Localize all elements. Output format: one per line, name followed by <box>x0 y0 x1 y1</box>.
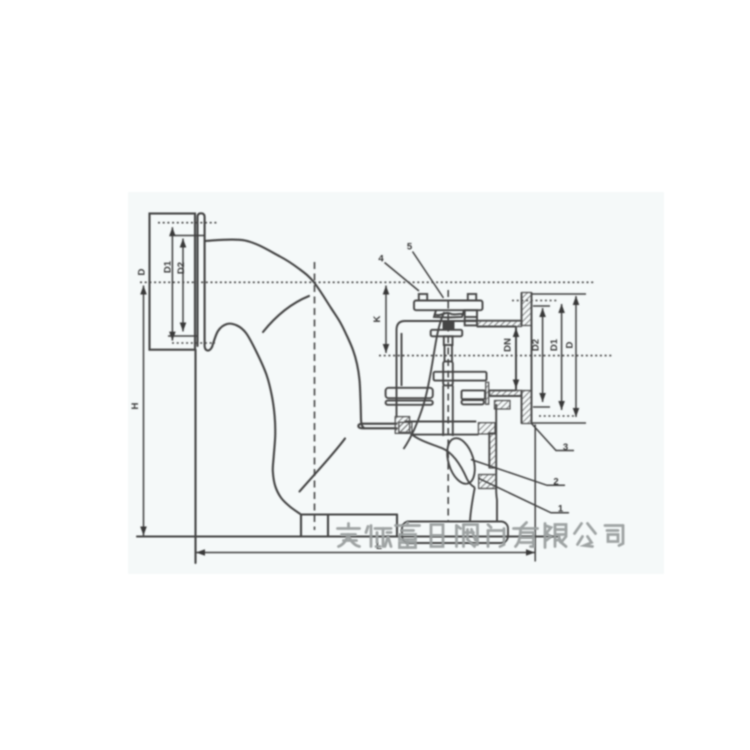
svg-text:H: H <box>130 402 141 409</box>
svg-text:D2: D2 <box>531 339 542 351</box>
svg-text:3: 3 <box>563 442 568 453</box>
svg-text:K: K <box>372 315 383 322</box>
svg-text:D1: D1 <box>549 338 560 351</box>
svg-text:4: 4 <box>378 254 384 265</box>
svg-text:D1: D1 <box>163 260 174 273</box>
svg-text:D: D <box>137 268 148 275</box>
svg-text:DN: DN <box>503 338 514 352</box>
svg-text:5: 5 <box>407 242 413 253</box>
svg-text:1: 1 <box>558 504 564 515</box>
svg-text:D2: D2 <box>176 262 187 274</box>
svg-text:D: D <box>565 341 576 348</box>
svg-text:2: 2 <box>553 477 558 488</box>
